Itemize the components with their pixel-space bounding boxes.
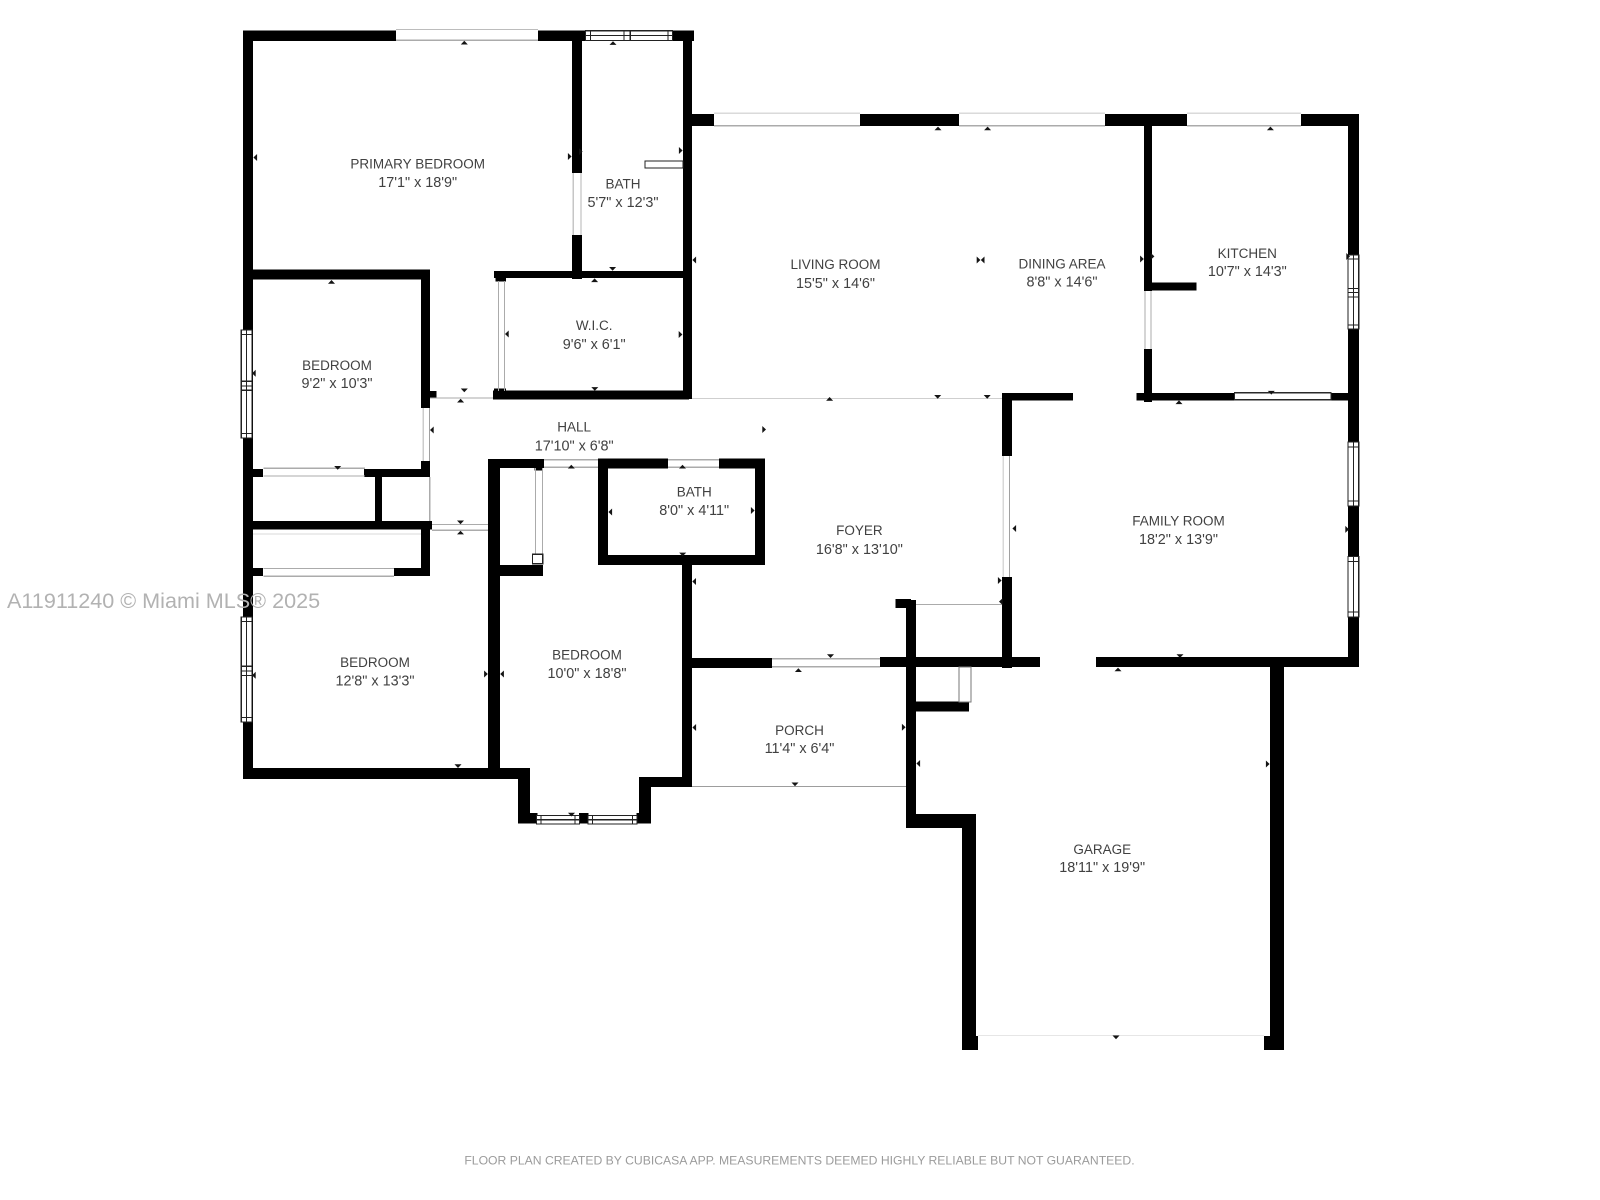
svg-text:16'8" x 13'10": 16'8" x 13'10" bbox=[816, 542, 903, 558]
svg-text:15'5" x 14'6": 15'5" x 14'6" bbox=[796, 276, 875, 292]
svg-text:FLOOR PLAN CREATED BY CUBICASA: FLOOR PLAN CREATED BY CUBICASA APP. MEAS… bbox=[464, 1154, 1134, 1168]
svg-text:18'2" x 13'9": 18'2" x 13'9" bbox=[1139, 532, 1218, 548]
svg-text:FOYER: FOYER bbox=[836, 523, 883, 538]
svg-text:BEDROOM: BEDROOM bbox=[552, 648, 622, 663]
svg-text:LIVING ROOM: LIVING ROOM bbox=[790, 257, 880, 272]
svg-text:BATH: BATH bbox=[677, 484, 712, 499]
svg-text:DINING AREA: DINING AREA bbox=[1018, 256, 1105, 271]
svg-text:PRIMARY BEDROOM: PRIMARY BEDROOM bbox=[350, 156, 485, 171]
svg-text:FAMILY ROOM: FAMILY ROOM bbox=[1132, 514, 1225, 529]
svg-text:17'1" x 18'9": 17'1" x 18'9" bbox=[378, 175, 457, 191]
svg-text:BEDROOM: BEDROOM bbox=[302, 358, 372, 373]
svg-text:BATH: BATH bbox=[605, 177, 640, 192]
svg-text:18'11" x 19'9": 18'11" x 19'9" bbox=[1059, 860, 1145, 876]
svg-text:10'0" x 18'8": 10'0" x 18'8" bbox=[548, 666, 627, 682]
svg-text:9'6" x 6'1": 9'6" x 6'1" bbox=[563, 337, 626, 353]
svg-text:HALL: HALL bbox=[557, 420, 591, 435]
svg-text:8'0" x 4'11": 8'0" x 4'11" bbox=[659, 503, 729, 519]
svg-text:10'7" x 14'3": 10'7" x 14'3" bbox=[1208, 264, 1287, 280]
svg-text:9'2" x 10'3": 9'2" x 10'3" bbox=[302, 376, 373, 392]
svg-text:PORCH: PORCH bbox=[775, 723, 824, 738]
svg-text:5'7" x 12'3": 5'7" x 12'3" bbox=[588, 195, 659, 211]
svg-text:W.I.C.: W.I.C. bbox=[576, 318, 613, 333]
svg-text:KITCHEN: KITCHEN bbox=[1218, 246, 1277, 261]
svg-text:A11911240 © Miami MLS® 2025: A11911240 © Miami MLS® 2025 bbox=[7, 588, 320, 613]
svg-text:GARAGE: GARAGE bbox=[1073, 842, 1131, 857]
svg-text:12'8" x 13'3": 12'8" x 13'3" bbox=[336, 674, 415, 690]
svg-text:BEDROOM: BEDROOM bbox=[340, 655, 410, 670]
svg-text:11'4" x 6'4": 11'4" x 6'4" bbox=[765, 741, 835, 757]
svg-text:17'10" x 6'8": 17'10" x 6'8" bbox=[535, 439, 614, 455]
svg-text:8'8" x 14'6": 8'8" x 14'6" bbox=[1027, 275, 1098, 291]
